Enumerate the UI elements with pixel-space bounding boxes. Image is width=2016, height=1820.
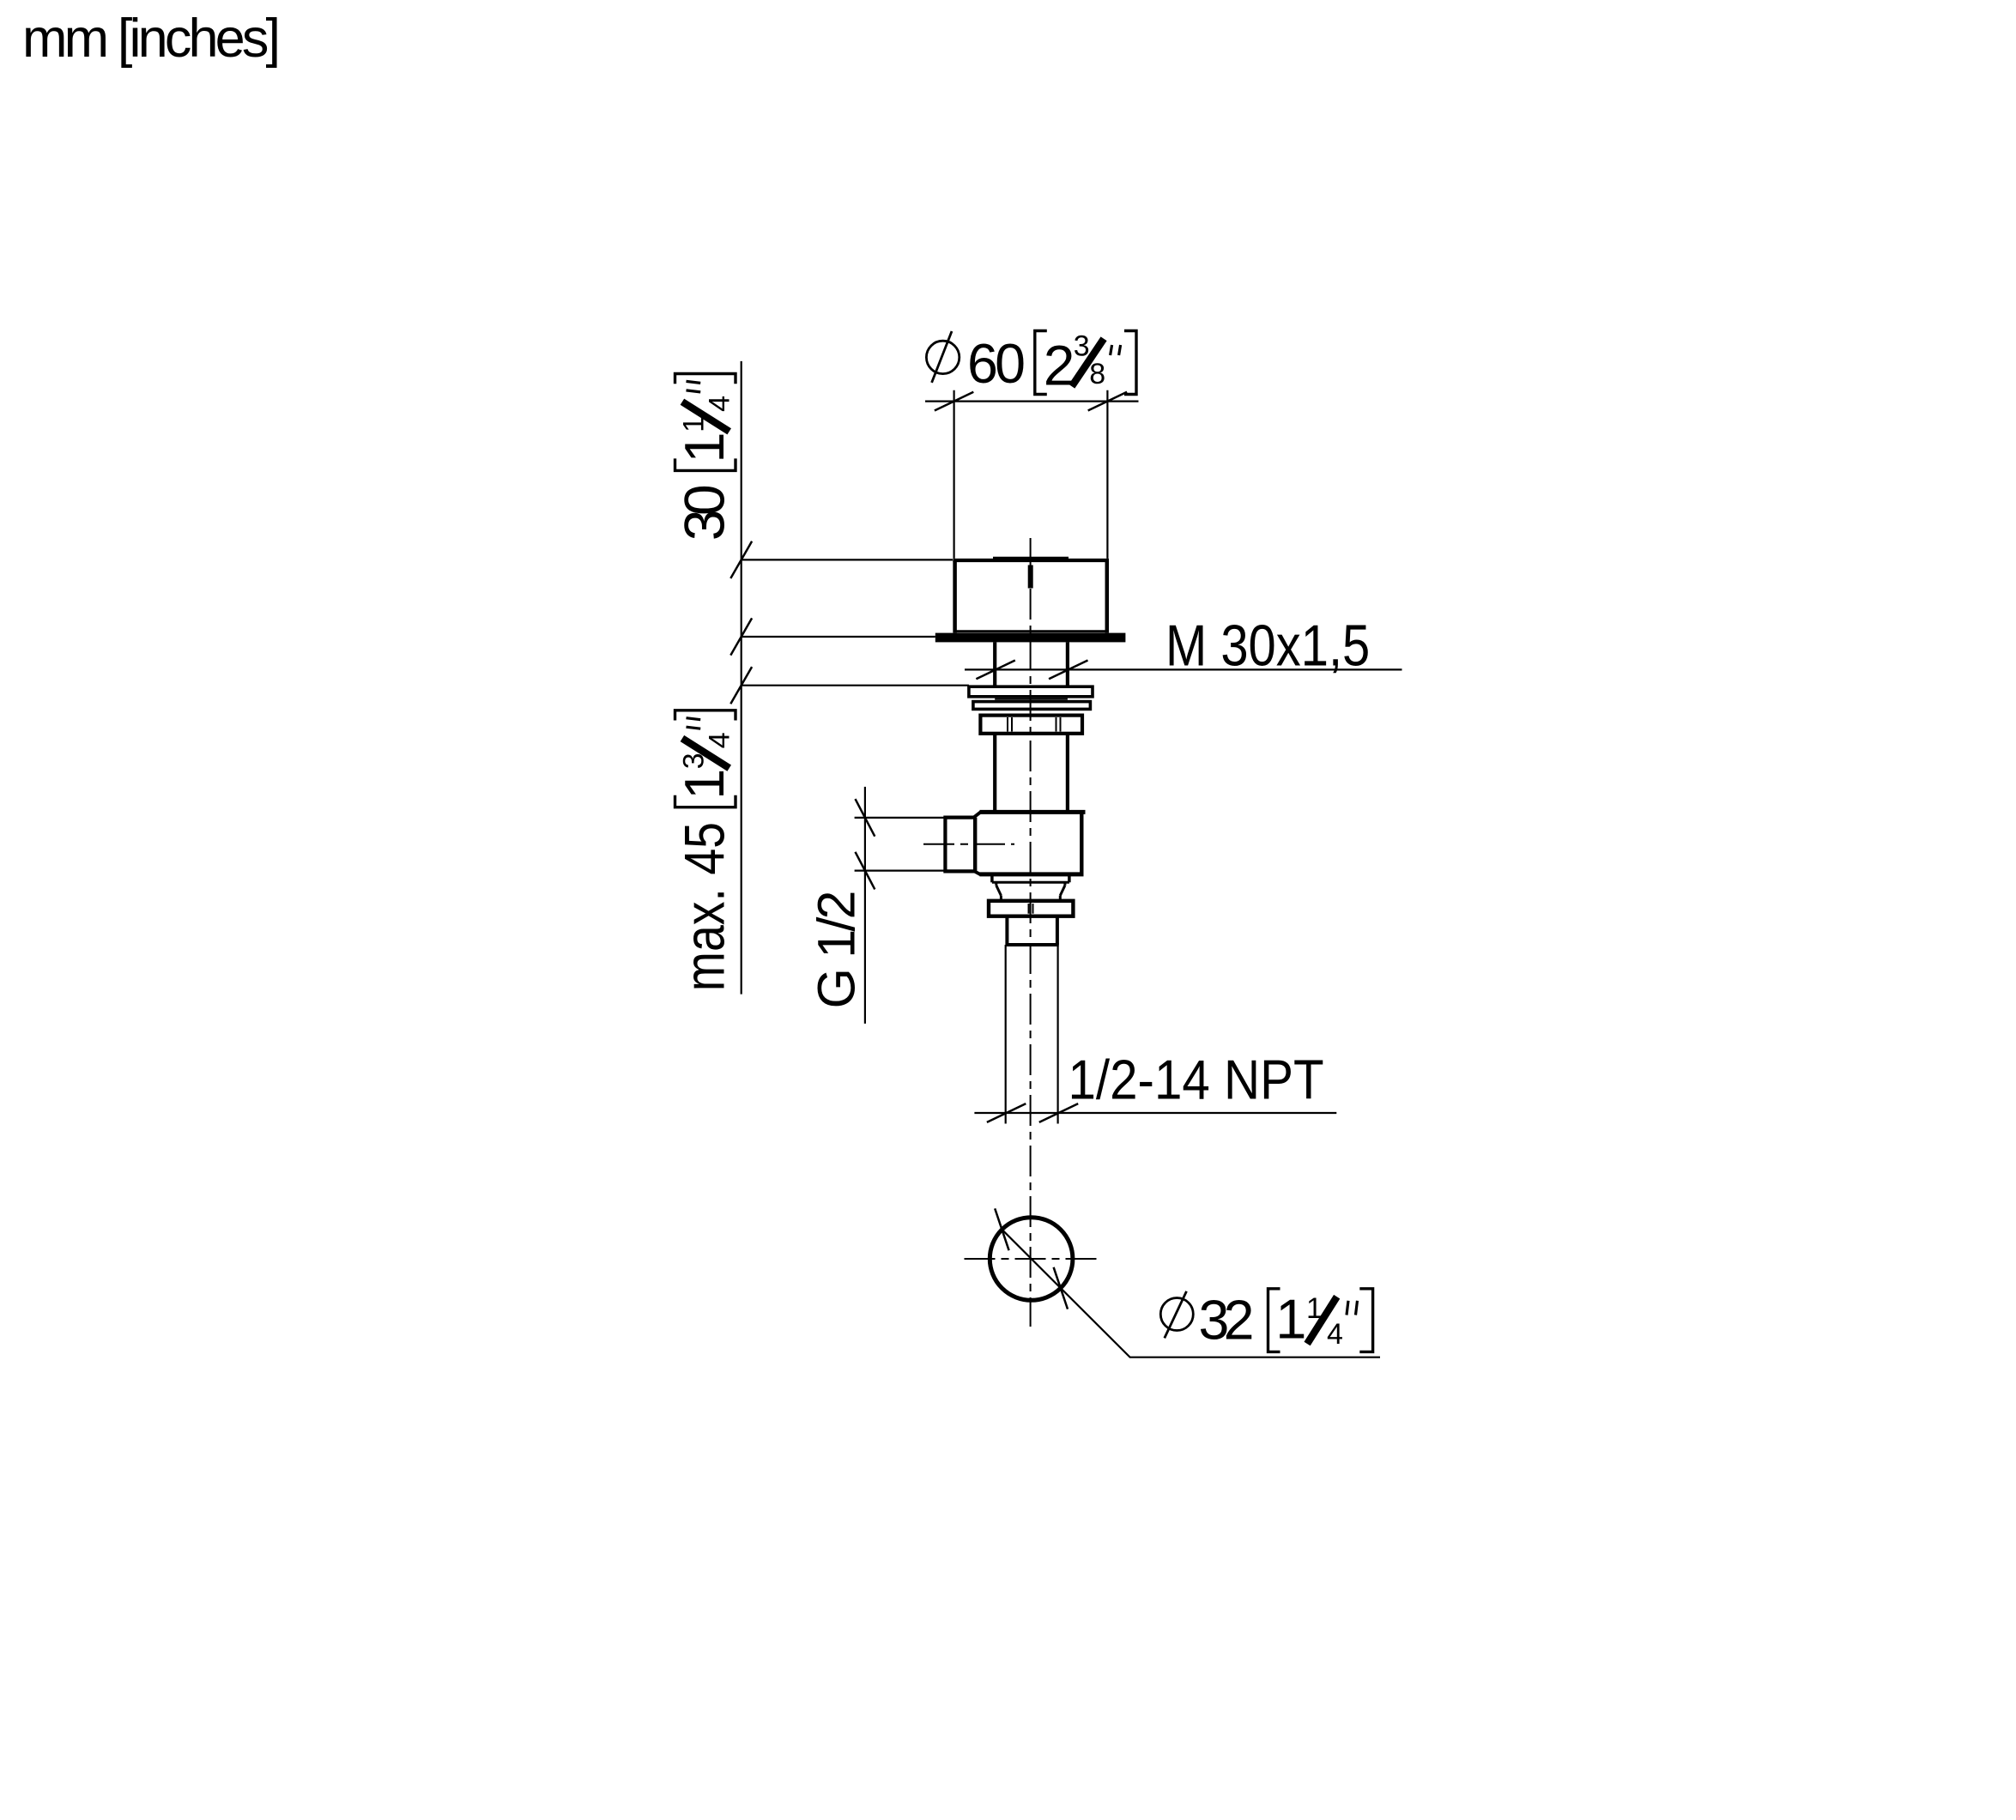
svg-text:32: 32	[1199, 1289, 1255, 1351]
svg-text:1: 1	[673, 432, 736, 463]
svg-text:1/2-14 NPT: 1/2-14 NPT	[1069, 1049, 1324, 1112]
svg-text:60: 60	[967, 333, 1026, 395]
svg-text:4: 4	[704, 396, 736, 412]
svg-text:1: 1	[1275, 1287, 1306, 1350]
svg-text:1: 1	[673, 769, 736, 800]
svg-text:4: 4	[704, 732, 736, 748]
svg-text:G 1/2: G 1/2	[807, 891, 865, 1009]
svg-text:2: 2	[1044, 334, 1075, 397]
svg-text:mm [inches]: mm [inches]	[22, 9, 281, 69]
svg-text:4: 4	[1327, 1318, 1343, 1351]
svg-text:8: 8	[1089, 358, 1105, 390]
svg-text:max. 45: max. 45	[673, 822, 736, 991]
svg-text:30: 30	[673, 484, 736, 541]
svg-text:M 30x1,5: M 30x1,5	[1165, 614, 1370, 678]
